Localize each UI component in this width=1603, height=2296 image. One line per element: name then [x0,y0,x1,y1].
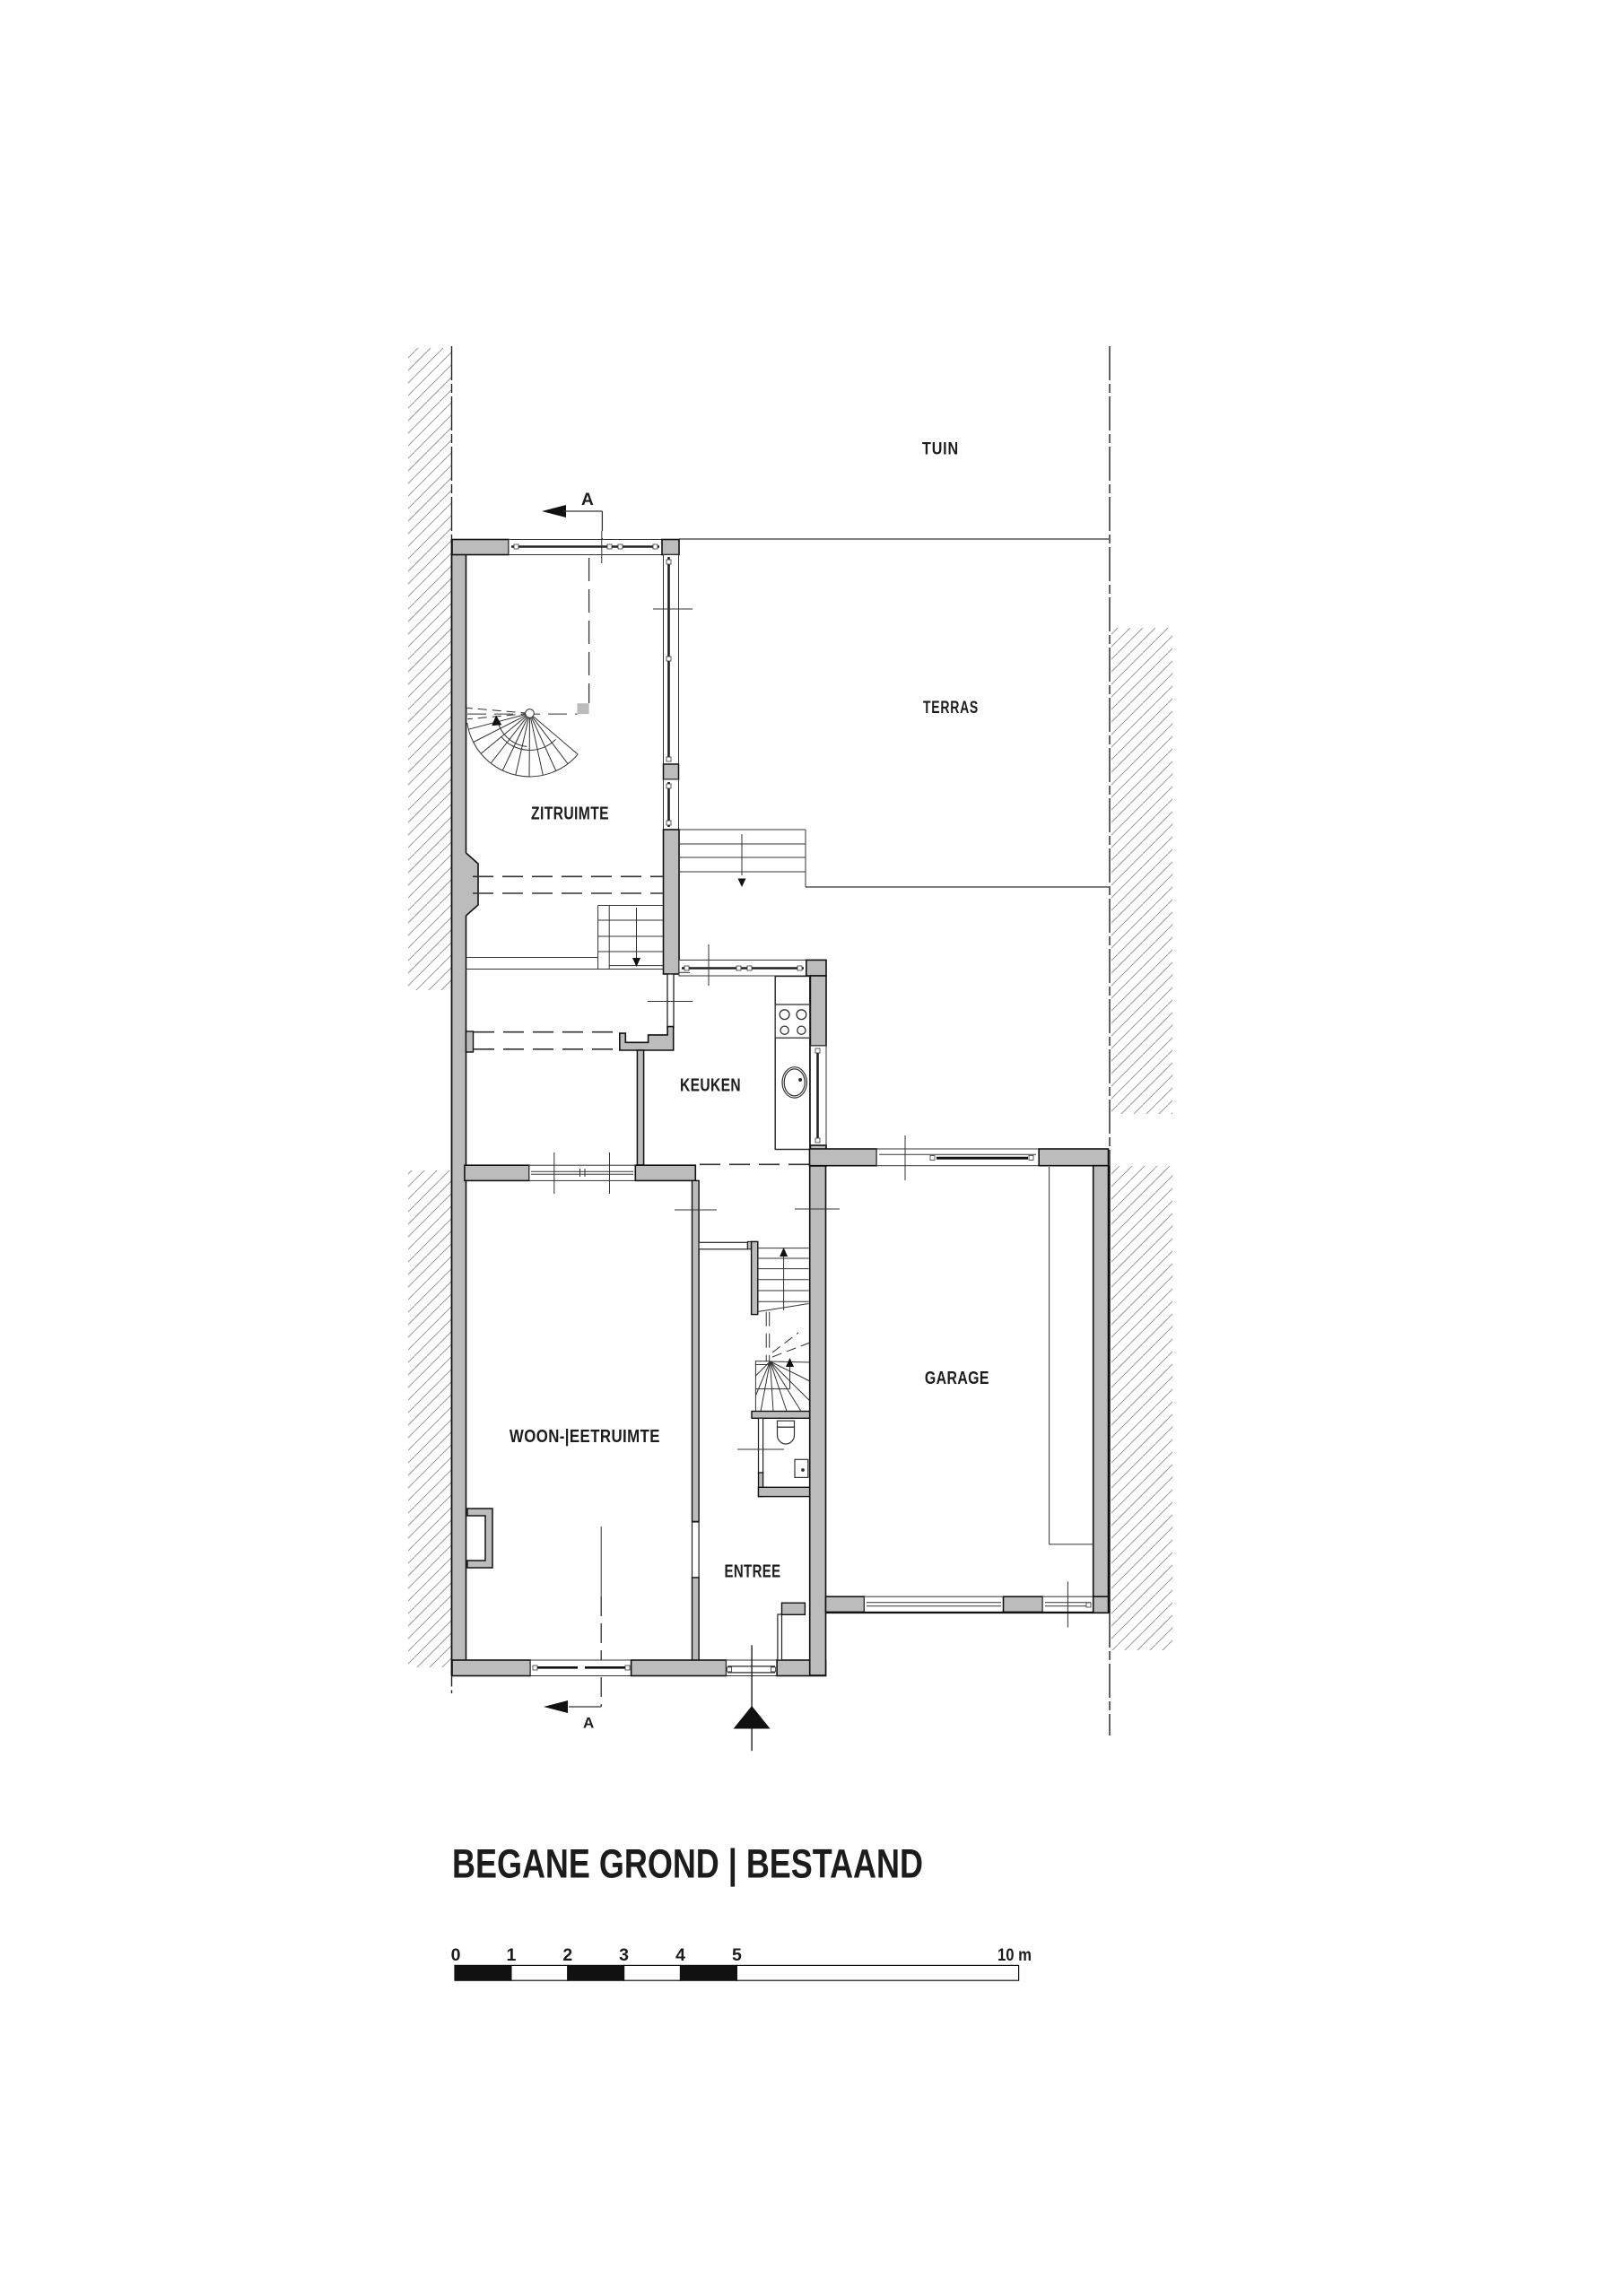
svg-text:TUIN: TUIN [922,440,959,459]
svg-text:WOON-|EETRUIMTE: WOON-|EETRUIMTE [510,1427,660,1447]
svg-text:GARAGE: GARAGE [925,1369,989,1388]
svg-text:KEUKEN: KEUKEN [680,1076,741,1096]
svg-text:ZITRUIMTE: ZITRUIMTE [531,804,609,824]
svg-text:A: A [583,1715,594,1732]
svg-text:ENTREE: ENTREE [725,1561,781,1581]
svg-text:1: 1 [506,1945,516,1965]
svg-text:0: 0 [451,1945,461,1965]
svg-text:TERRAS: TERRAS [923,699,979,717]
svg-text:BEGANE GROND | BESTAAND: BEGANE GROND | BESTAAND [452,1841,923,1888]
svg-text:A: A [581,491,594,509]
svg-text:10 m: 10 m [998,1945,1032,1965]
svg-text:5: 5 [732,1945,742,1965]
svg-text:4: 4 [675,1945,685,1965]
svg-text:3: 3 [619,1945,629,1965]
svg-text:2: 2 [562,1945,572,1965]
